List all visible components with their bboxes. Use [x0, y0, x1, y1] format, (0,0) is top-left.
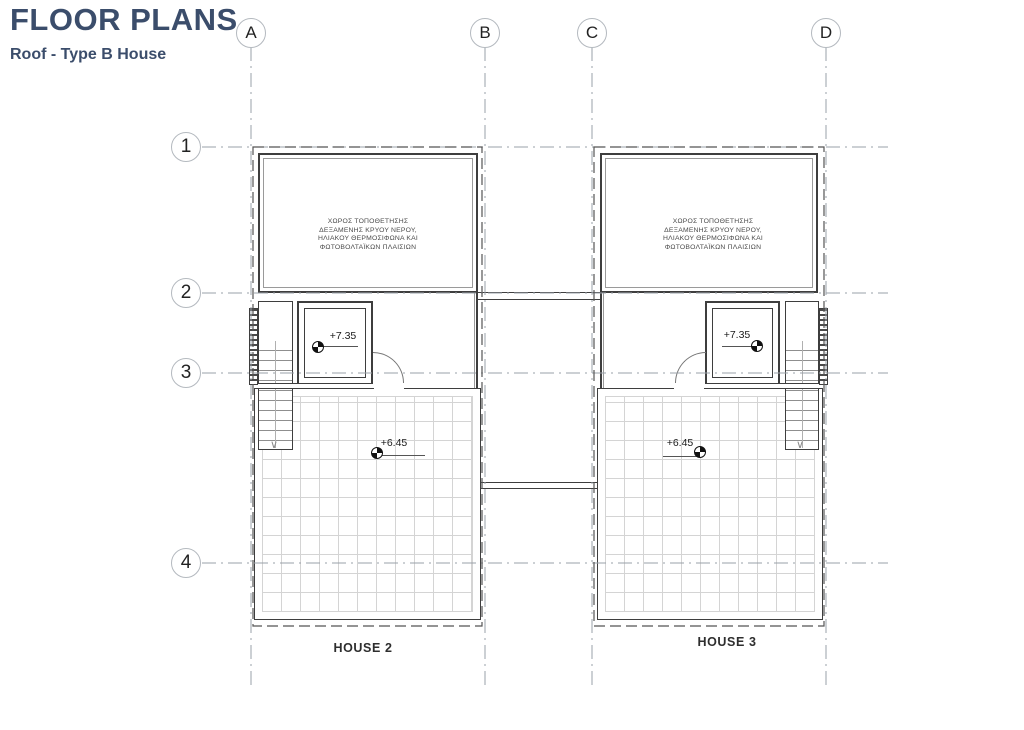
- house3-level-645-leader: [663, 456, 700, 457]
- grid-bubble-row-3: 3: [171, 358, 201, 388]
- annotation-line: ΔΕΞΑΜΕΝΗΣ ΚΡΥΟΥ ΝΕΡΟΥ,: [628, 227, 798, 236]
- level-marker-icon: [751, 340, 763, 352]
- house2-right-wall: [474, 293, 478, 388]
- house3-door-opening: [674, 385, 704, 391]
- grid-bubble-row-2: 2: [171, 278, 201, 308]
- party-wall-connector-top: [478, 292, 600, 300]
- grid-bubble-row-1: 1: [171, 132, 201, 162]
- party-wall-connector-bottom: [478, 482, 600, 489]
- annotation-line: ΗΛΙΑΚΟΥ ΘΕΡΜΟΣΙΦΩΝΑ ΚΑΙ: [283, 235, 453, 244]
- house2-door-opening: [374, 385, 404, 391]
- house3-stair-rail: [802, 341, 803, 448]
- house2-door-swing-arc-icon: [373, 352, 404, 383]
- grid-bubble-column-c: C: [577, 18, 607, 48]
- house3-tile-grid: [605, 396, 815, 612]
- house2-level-645-leader: [377, 455, 425, 456]
- grid-bubble-column-d: D: [811, 18, 841, 48]
- house2-stairwell-box: [297, 301, 373, 385]
- house3-enclosure-south-wall: [705, 383, 819, 389]
- house2-stairs: ∨: [258, 301, 293, 450]
- grid-bubble-column-b: B: [470, 18, 500, 48]
- house2-stair-rail: [275, 341, 276, 448]
- house3-door-swing-arc-icon: [675, 352, 706, 383]
- floor-plan-canvas: FLOOR PLANS Roof - Type B House A B C D …: [0, 0, 1024, 730]
- annotation-line: ΧΩΡΟΣ ΤΟΠΟΘΕΤΗΣΗΣ: [283, 218, 453, 227]
- house3-left-wall: [600, 293, 604, 388]
- house2-annotation: ΧΩΡΟΣ ΤΟΠΟΘΕΤΗΣΗΣ ΔΕΞΑΜΕΝΗΣ ΚΡΥΟΥ ΝΕΡΟΥ,…: [283, 218, 453, 252]
- house3-hatched-wall: [819, 308, 828, 385]
- grid-lines-layer: [0, 0, 1024, 730]
- house2-level-735: +7.35: [320, 330, 366, 342]
- level-marker-icon: [312, 341, 324, 353]
- annotation-line: ΔΕΞΑΜΕΝΗΣ ΚΡΥΟΥ ΝΕΡΟΥ,: [283, 227, 453, 236]
- page-subtitle: Roof - Type B House: [10, 46, 166, 64]
- annotation-line: ΦΩΤΟΒΟΛΤΑΪΚΩΝ ΠΛΑΙΣΙΩΝ: [628, 244, 798, 253]
- annotation-line: ΦΩΤΟΒΟΛΤΑΪΚΩΝ ΠΛΑΙΣΙΩΝ: [283, 244, 453, 253]
- grid-bubble-column-a: A: [236, 18, 266, 48]
- house3-level-645: +6.45: [657, 437, 703, 449]
- house3-level-735: +7.35: [714, 329, 760, 341]
- house3-stairwell-box: [705, 301, 780, 385]
- house2-enclosure-south-wall: [258, 383, 373, 389]
- house2-hatched-wall: [249, 308, 258, 385]
- stair-down-arrow-icon: ∨: [796, 438, 804, 451]
- annotation-line: ΗΛΙΑΚΟΥ ΘΕΡΜΟΣΙΦΩΝΑ ΚΑΙ: [628, 235, 798, 244]
- house2-tile-grid: [262, 396, 473, 612]
- house3-stairwell-box-inner: [712, 308, 773, 378]
- house3-stairs: ∨: [785, 301, 819, 450]
- page-title: FLOOR PLANS: [10, 2, 238, 38]
- house3-label: HOUSE 3: [672, 635, 782, 649]
- stair-down-arrow-icon: ∨: [270, 438, 278, 451]
- house3-annotation: ΧΩΡΟΣ ΤΟΠΟΘΕΤΗΣΗΣ ΔΕΞΑΜΕΝΗΣ ΚΡΥΟΥ ΝΕΡΟΥ,…: [628, 218, 798, 252]
- house2-level-645: +6.45: [371, 437, 417, 449]
- annotation-line: ΧΩΡΟΣ ΤΟΠΟΘΕΤΗΣΗΣ: [628, 218, 798, 227]
- house2-label: HOUSE 2: [308, 641, 418, 655]
- house2-level-735-leader: [318, 346, 358, 347]
- grid-bubble-row-4: 4: [171, 548, 201, 578]
